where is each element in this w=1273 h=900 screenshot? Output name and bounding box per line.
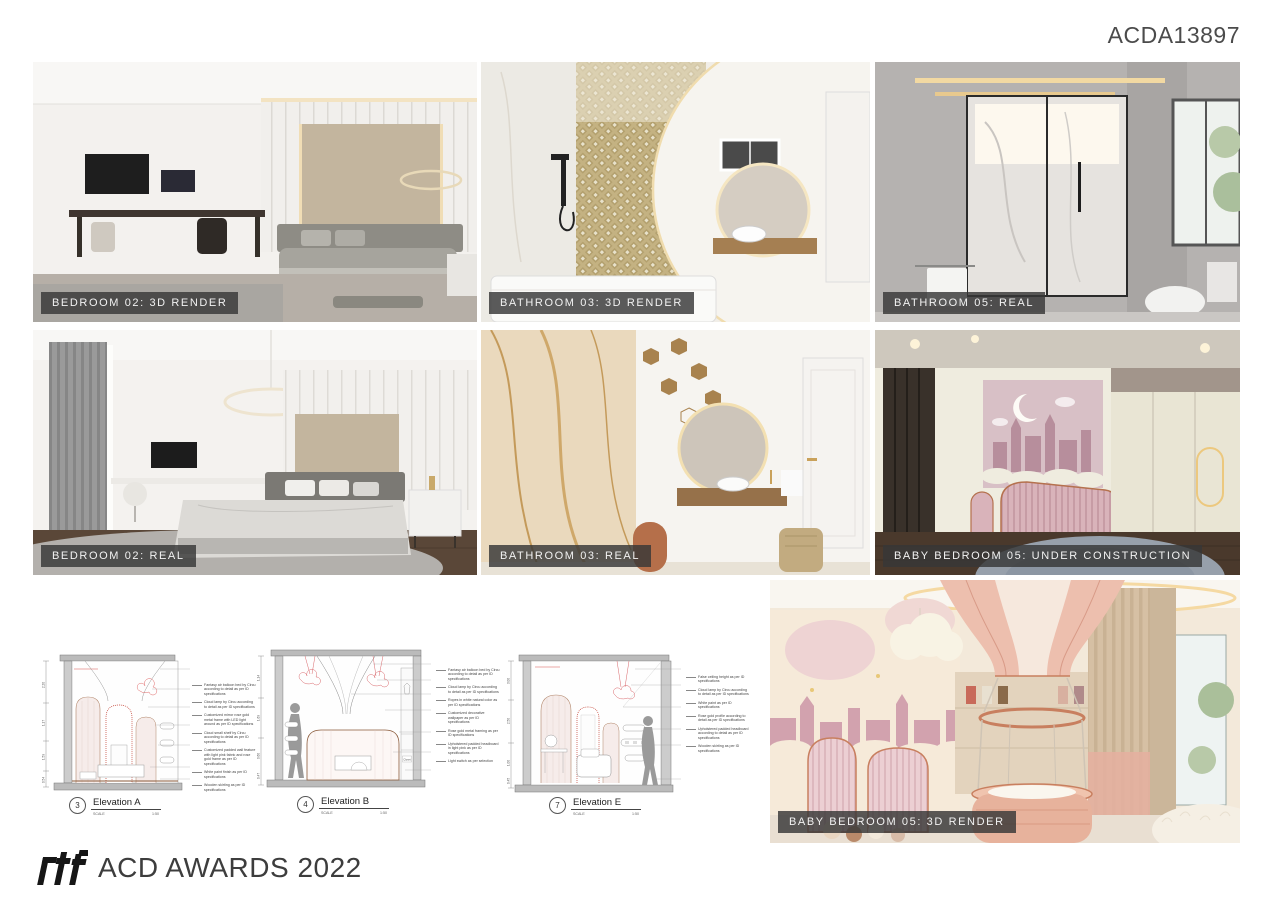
- photo-bedroom-02-real: BEDROOM 02: REAL: [33, 330, 477, 575]
- annotation: Fantasy air balloon bed by Circu accordi…: [204, 683, 256, 696]
- photo-label-badge: BEDROOM 02: REAL: [41, 545, 196, 567]
- annotation: Upholstered padded headboard according t…: [698, 727, 750, 740]
- annotation: Wooden skirting as per ID specifications: [204, 783, 256, 792]
- bathroom-03-real-illustration: [481, 330, 870, 575]
- svg-text:2.20: 2.20: [42, 682, 46, 688]
- annotation: Cloud small shelf by Circu according to …: [204, 731, 256, 744]
- closet-section: [401, 668, 413, 780]
- bathroom-05-real-illustration: [875, 62, 1240, 322]
- annotation: Upholstered padded headboard in light pi…: [448, 742, 500, 755]
- wardrobe: [1111, 392, 1240, 532]
- caption-label: Elevation E: [571, 797, 641, 810]
- shower-door-handle: [1078, 162, 1081, 212]
- scale-label: SCALE: [573, 812, 585, 816]
- photo-label-badge: BEDROOM 02: 3D RENDER: [41, 292, 238, 314]
- annotation: Customized mirror rose gold metal frame …: [204, 713, 256, 726]
- svg-text:1.69: 1.69: [257, 715, 261, 721]
- door-handle: [807, 458, 817, 461]
- basket: [779, 528, 823, 572]
- photo-baby-bedroom-05-3d-render: BABY BEDROOM 05: 3D RENDER: [770, 580, 1240, 843]
- elevation-e-drawing: 3.00 2.50 1.00 0.45: [505, 645, 681, 807]
- curtain: [49, 342, 107, 532]
- annotation: Cloud lamp by Circu according to detail …: [204, 700, 256, 709]
- scale-label: SCALE: [321, 811, 333, 815]
- caption-label: Elevation B: [319, 796, 389, 809]
- svg-text:1.14: 1.14: [257, 675, 261, 681]
- svg-text:0.60: 0.60: [257, 753, 261, 759]
- presentation-board: ACDA13897: [0, 0, 1273, 900]
- elevation-a: 2.20 1.17 1.59 0.54: [40, 645, 256, 830]
- baby-bedroom-05-3d-render-illustration: [770, 580, 1240, 843]
- annotation: Cloud lamp by Circu according to detail …: [698, 688, 750, 697]
- scale-value: 1:50: [632, 812, 639, 816]
- elevation-a-annotations: Fantasy air balloon bed by Circu accordi…: [192, 683, 256, 796]
- bedroom-02-real-illustration: [33, 330, 477, 575]
- annotation: Light switch as per selection: [448, 759, 500, 763]
- svg-text:1.59: 1.59: [42, 754, 46, 760]
- dark-door: [883, 368, 935, 550]
- annotation: Wooden skirting as per ID specifications: [698, 744, 750, 753]
- annotation: Customized padded wall feature with ligh…: [204, 748, 256, 766]
- elevation-b-annotations: Fantasy air balloon bed by Circu accordi…: [436, 668, 500, 768]
- elevation-b-drawing: 1.14 1.69 0.60 0.47: [255, 638, 431, 806]
- svg-text:0.45: 0.45: [507, 778, 511, 784]
- elevation-a-drawing: 2.20 1.17 1.59 0.54: [40, 645, 190, 807]
- annotation: Cloud lamp by Circu according to detail …: [448, 685, 500, 694]
- photo-bathroom-03-real: BATHROOM 03: REAL: [481, 330, 870, 575]
- annotation: False ceiling height as per ID specifica…: [698, 675, 750, 684]
- annotation: White paint finish as per ID specificati…: [204, 770, 256, 779]
- annotation: Ropes in white natural color as per ID s…: [448, 698, 500, 707]
- bedroom-02-3d-render-illustration: [33, 62, 477, 322]
- elevation-b-caption: 4 Elevation B SCALE 1:50: [297, 796, 389, 815]
- photo-label-badge: BABY BEDROOM 05: 3D RENDER: [778, 811, 1016, 833]
- door: [803, 358, 863, 548]
- photo-label-badge: BATHROOM 05: REAL: [883, 292, 1045, 314]
- elevation-e-caption: 7 Elevation E SCALE 1:50: [549, 797, 641, 816]
- headboard-outline: [307, 730, 399, 780]
- nightstand: [409, 490, 461, 536]
- photo-label-badge: BATHROOM 03: REAL: [489, 545, 651, 567]
- annotation: White paint as per ID specifications: [698, 701, 750, 710]
- submission-code: ACDA13897: [1108, 22, 1240, 49]
- elevation-b: 1.14 1.69 0.60 0.47: [255, 638, 500, 830]
- caption-label: Elevation A: [91, 797, 161, 810]
- photo-baby-bedroom-05-under-construction: BABY BEDROOM 05: UNDER CONSTRUCTION: [875, 330, 1240, 575]
- window: [1174, 635, 1226, 805]
- photo-label-badge: BABY BEDROOM 05: UNDER CONSTRUCTION: [883, 545, 1202, 567]
- annotation: Rose gold profile according to detail as…: [698, 714, 750, 723]
- annotation: Customized decorative wallpaper as per I…: [448, 711, 500, 724]
- svg-text:1.00: 1.00: [507, 760, 511, 766]
- annotation: Rose gold metal framing as per ID specif…: [448, 729, 500, 738]
- baby-bedroom-05-under-construction-illustration: [875, 330, 1240, 575]
- svg-text:0.54: 0.54: [42, 777, 46, 783]
- elevation-a-caption: 3 Elevation A SCALE 1:50: [69, 797, 161, 816]
- scale-value: 1:50: [152, 812, 159, 816]
- caption-number: 7: [549, 797, 566, 814]
- awards-title: ACD AWARDS 2022: [98, 852, 362, 884]
- scale-value: 1:50: [380, 811, 387, 815]
- photo-bathroom-05-real: BATHROOM 05: REAL: [875, 62, 1240, 322]
- photo-bathroom-03-3d-render: BATHROOM 03: 3D RENDER: [481, 62, 870, 322]
- svg-text:2.50: 2.50: [507, 718, 511, 724]
- annotation: Fantasy air balloon bed by Circu accordi…: [448, 668, 500, 681]
- caption-number: 3: [69, 797, 86, 814]
- footer: ACD AWARDS 2022: [30, 848, 362, 888]
- scale-label: SCALE: [93, 812, 105, 816]
- photo-label-badge: BATHROOM 03: 3D RENDER: [489, 292, 694, 314]
- bathroom-03-3d-render-illustration: [481, 62, 870, 322]
- caption-number: 4: [297, 796, 314, 813]
- svg-text:1.17: 1.17: [42, 720, 46, 726]
- svg-text:Closet: Closet: [403, 758, 411, 762]
- elevation-e: 3.00 2.50 1.00 0.45: [505, 645, 750, 830]
- elevation-e-annotations: False ceiling height as per ID specifica…: [686, 675, 750, 757]
- tv-screen: [85, 154, 149, 194]
- svg-text:3.00: 3.00: [507, 678, 511, 684]
- photo-bedroom-02-3d-render: BEDROOM 02: 3D RENDER: [33, 62, 477, 322]
- rtf-logo: [30, 848, 88, 888]
- tv-screen: [151, 442, 197, 468]
- shower-fixture: [561, 158, 566, 206]
- svg-text:0.47: 0.47: [257, 773, 261, 779]
